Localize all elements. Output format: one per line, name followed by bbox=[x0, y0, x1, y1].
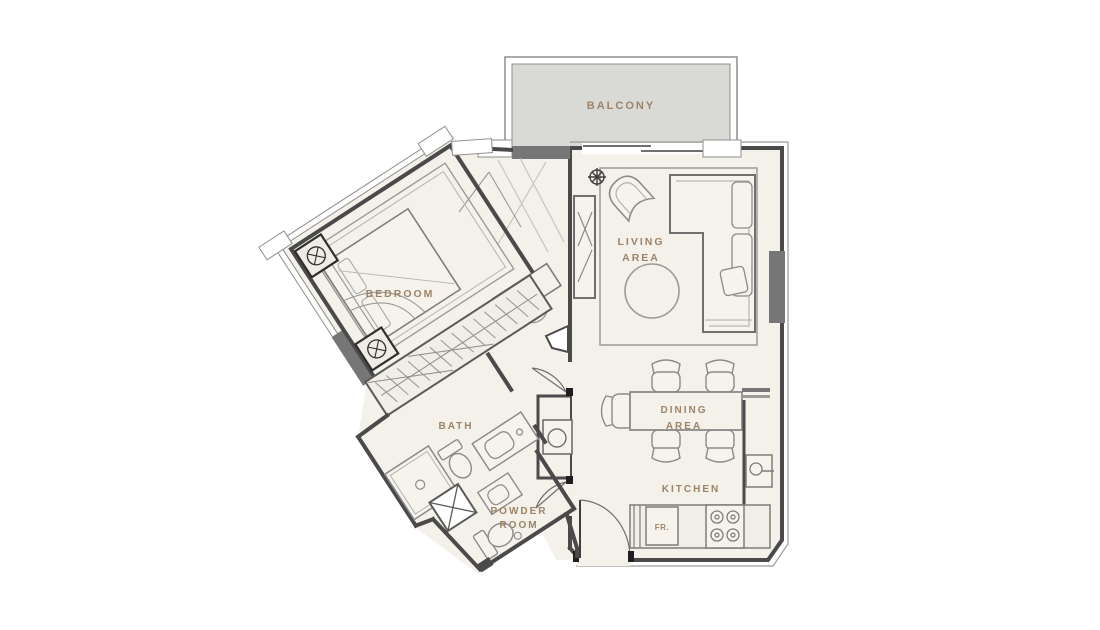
wall-dark-bar-top-hall bbox=[512, 146, 570, 159]
jamb-powder-door bbox=[566, 476, 573, 484]
sofa-throw-pillow bbox=[720, 266, 749, 296]
dining-chair-1-seat bbox=[652, 372, 680, 392]
dining-chair-4-seat bbox=[706, 430, 734, 450]
label-balcony: BALCONY bbox=[587, 100, 655, 112]
label-powder-1: POWDER bbox=[491, 506, 548, 517]
entry-door-gap bbox=[577, 553, 630, 566]
floor-plan-page: BALCONY LIVING AREA BEDROOM BATH POWDER … bbox=[0, 0, 1100, 630]
floor-plan-drawing: BALCONY LIVING AREA BEDROOM BATH POWDER … bbox=[0, 0, 1100, 630]
kitchen-sink bbox=[746, 455, 774, 487]
label-dining-2: AREA bbox=[666, 421, 702, 432]
label-living-1: LIVING bbox=[617, 236, 664, 248]
dining-chair-4 bbox=[706, 448, 734, 462]
label-fridge: FR. bbox=[655, 523, 669, 532]
label-dining-1: DINING bbox=[661, 405, 708, 416]
door-jamb-right bbox=[628, 551, 634, 562]
window-frame-hall-top bbox=[452, 139, 493, 156]
sofa-cushion-1 bbox=[732, 182, 752, 228]
tv-console bbox=[574, 196, 595, 298]
washing-machine bbox=[543, 420, 572, 454]
label-powder-2: ROOM bbox=[499, 520, 538, 531]
label-bedroom: BEDROOM bbox=[366, 288, 435, 300]
dining-chair-2-seat bbox=[706, 372, 734, 392]
label-bath: BATH bbox=[438, 421, 473, 432]
dining-chair-3-seat bbox=[652, 430, 680, 450]
stove bbox=[706, 505, 744, 548]
window-frame-right-of-balcony bbox=[703, 140, 741, 157]
label-living-2: AREA bbox=[622, 252, 660, 264]
label-kitchen: KITCHEN bbox=[662, 484, 720, 495]
wall-stub-2 bbox=[742, 395, 770, 398]
wall-stub-1 bbox=[742, 388, 770, 392]
jamb-bath-door bbox=[566, 388, 573, 396]
right-wall-column-block bbox=[769, 251, 785, 323]
dining-chair-3 bbox=[652, 448, 680, 462]
balcony-door-gap bbox=[582, 143, 704, 154]
